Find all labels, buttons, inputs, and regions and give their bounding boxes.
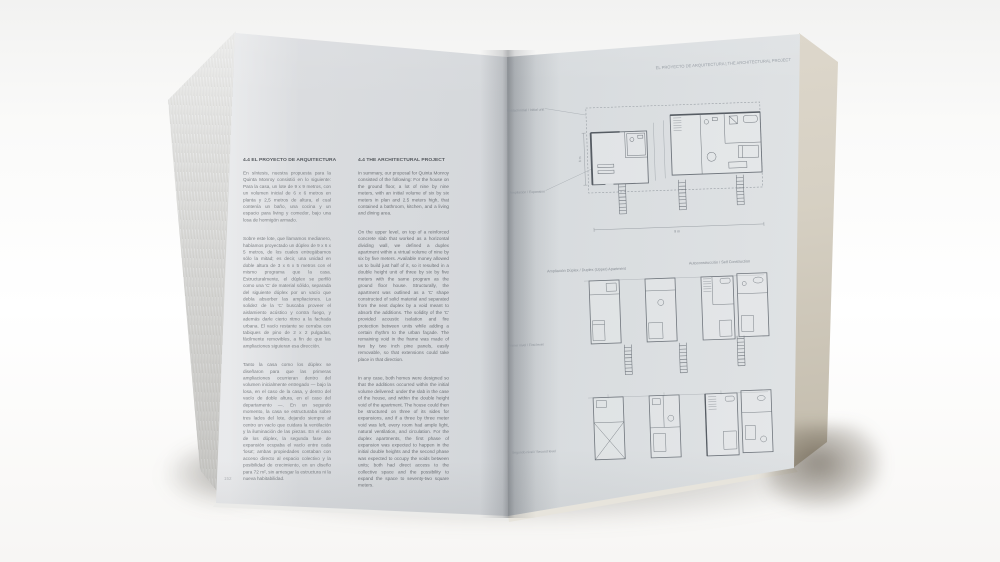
house-plan — [591, 131, 649, 185]
unit-plan — [589, 280, 621, 344]
paragraph-es-2: Sobre este lote, que llamamos medianero,… — [243, 236, 331, 350]
paragraph-es-1: En síntesis, nuestra propuesta para la Q… — [243, 170, 331, 224]
paragraph-en-2: On the upper level, on top of a reinforc… — [358, 229, 449, 363]
floor-plan-figure-lower: Primer nivel / First level Segundo nivel… — [506, 273, 773, 463]
section-heading-es: 4.4 EL PROYECTO DE ARQUITECTURA — [243, 157, 331, 163]
ladder — [618, 184, 626, 214]
dimension-width-label: 9 m — [674, 229, 680, 233]
plans-row-2 — [593, 390, 773, 460]
spanish-column: 4.4 EL PROYECTO DE ARQUITECTURA En sínte… — [243, 157, 331, 501]
dimension-height — [582, 133, 588, 185]
leader-line — [545, 107, 586, 116]
ladder — [736, 175, 744, 205]
party-void — [653, 120, 665, 180]
ladder — [678, 180, 686, 210]
ladder — [679, 343, 687, 373]
unit-plan — [737, 273, 769, 337]
plans-row-1 — [589, 273, 769, 344]
label-initial-unit: Unidad inicial / Initial unit — [507, 108, 544, 113]
ladder — [737, 336, 745, 366]
left-page-text: 4.4 EL PROYECTO DE ARQUITECTURA En sínte… — [243, 157, 451, 491]
caption-duplex: Ampliación Dúplex / Duplex (Upper) Apart… — [547, 267, 627, 274]
unit-plan — [645, 278, 677, 342]
unit-plan — [741, 390, 773, 453]
paragraph-es-3: Tanto la casa como los dúplex se diseñar… — [243, 362, 331, 483]
page-number: 152 — [224, 476, 232, 481]
dimension-height-label: 6 m — [578, 156, 582, 162]
running-header: EL PROYECTO DE ARQUITECTURA | THE ARCHIT… — [656, 57, 792, 70]
section-heading-en: 4.4 THE ARCHITECTURAL PROJECT — [358, 157, 449, 163]
paragraph-en-3: In any case, both homes were designed so… — [358, 375, 449, 489]
floor-plan-figure-upper: Unidad inicial / Initial unit Ampliación… — [507, 100, 764, 239]
unit-plan — [705, 393, 739, 456]
label-level-2: Segundo nivel / Second level — [512, 449, 556, 455]
ladder — [624, 345, 632, 375]
label-expansion: Ampliación / Expansion — [510, 190, 545, 195]
unit-plan — [649, 395, 681, 458]
caption-self-construction: Autoconstrucción / Self Construction — [689, 259, 750, 265]
unit-plan — [701, 276, 735, 340]
book-photo: 4.4 EL PROYECTO DE ARQUITECTURA En sínte… — [0, 0, 1000, 562]
english-column: 4.4 THE ARCHITECTURAL PROJECT In summary… — [358, 157, 449, 501]
right-page-figures: EL PROYECTO DE ARQUITECTURA | THE ARCHIT… — [505, 30, 835, 490]
paragraph-en-1: In summary, our proposal for Quinta Monr… — [358, 170, 449, 217]
unit-plan — [593, 397, 625, 460]
label-level-1: Primer nivel / First level — [508, 343, 544, 348]
duplex-plan — [670, 112, 762, 175]
